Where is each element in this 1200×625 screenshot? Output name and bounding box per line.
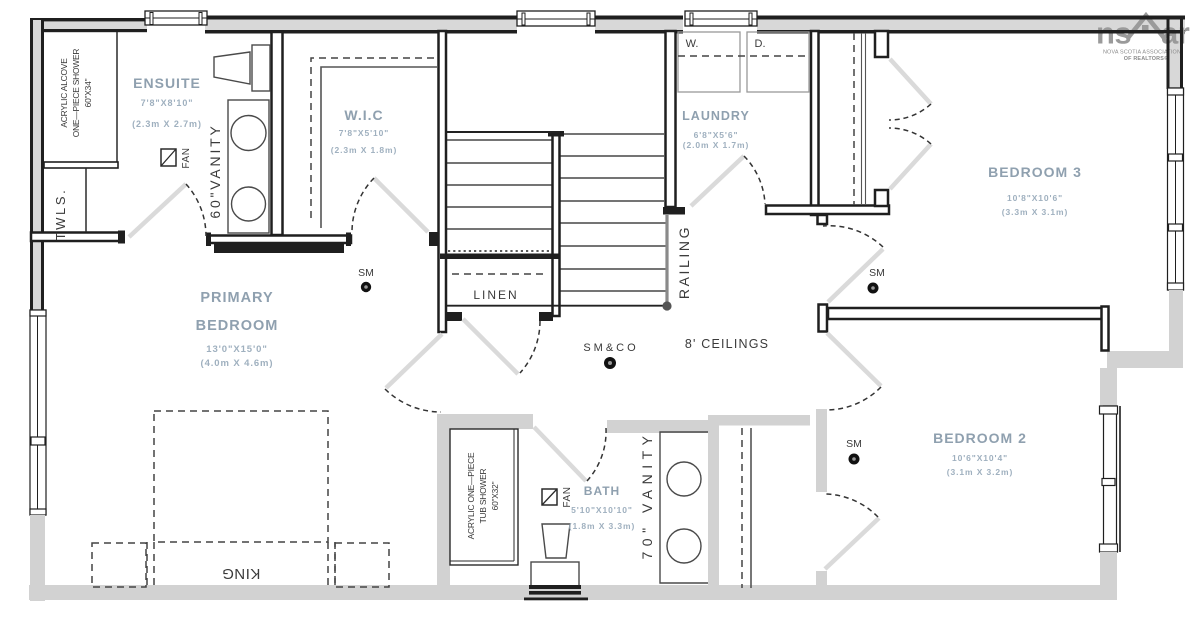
svg-text:OF REALTORS®: OF REALTORS®	[1124, 55, 1169, 62]
svg-text:SM&CO: SM&CO	[583, 342, 638, 354]
svg-text:D.: D.	[755, 38, 766, 50]
svg-text:(3.3m X 3.1m): (3.3m X 3.1m)	[1002, 207, 1069, 217]
svg-text:W.: W.	[686, 38, 699, 50]
svg-text:(3.1m X 3.2m): (3.1m X 3.2m)	[947, 467, 1014, 477]
svg-text:(1.8m X 3.3m): (1.8m X 3.3m)	[569, 521, 636, 531]
svg-text:BEDROOM 2: BEDROOM 2	[933, 430, 1027, 446]
svg-text:PRIMARY: PRIMARY	[200, 290, 273, 306]
svg-text:BATH: BATH	[584, 484, 620, 498]
svg-text:SM: SM	[846, 438, 862, 450]
svg-text:RAILING: RAILING	[676, 225, 692, 299]
svg-text:(2.3m X 2.7m): (2.3m X 2.7m)	[132, 119, 202, 129]
svg-text:5'10"X10'10": 5'10"X10'10"	[571, 505, 633, 515]
svg-text:10'8"X10'6": 10'8"X10'6"	[1007, 193, 1063, 203]
svg-text:LINEN: LINEN	[473, 288, 518, 302]
svg-text:60"X34": 60"X34"	[83, 78, 93, 107]
svg-text:BEDROOM: BEDROOM	[196, 318, 279, 334]
svg-text:(2.3m X 1.8m): (2.3m X 1.8m)	[331, 145, 398, 155]
svg-text:ONE—PIECE SHOWER: ONE—PIECE SHOWER	[71, 49, 81, 138]
svg-text:13'0"X15'0": 13'0"X15'0"	[206, 344, 267, 355]
svg-text:ACRYLIC ONE—PIECE: ACRYLIC ONE—PIECE	[466, 452, 476, 539]
svg-text:SM: SM	[869, 267, 885, 279]
svg-text:FAN: FAN	[181, 147, 192, 168]
svg-text:6'8"X5'6": 6'8"X5'6"	[694, 130, 739, 140]
svg-text:LAUNDRY: LAUNDRY	[682, 109, 750, 123]
svg-text:TUB SHOWER: TUB SHOWER	[478, 468, 488, 523]
svg-text:60"X32": 60"X32"	[490, 481, 500, 510]
svg-text:ENSUITE: ENSUITE	[133, 75, 201, 91]
svg-text:(4.0m X 4.6m): (4.0m X 4.6m)	[201, 358, 274, 369]
svg-text:(2.0m X 1.7m): (2.0m X 1.7m)	[683, 140, 750, 150]
svg-text:W.I.C: W.I.C	[344, 107, 383, 123]
svg-text:60"VANITY: 60"VANITY	[207, 123, 223, 218]
svg-text:ACRYLIC ALCOVE: ACRYLIC ALCOVE	[59, 58, 69, 128]
svg-text:70" VANITY: 70" VANITY	[639, 431, 655, 560]
svg-text:8' CEILINGS: 8' CEILINGS	[685, 337, 769, 351]
svg-text:7'8"X8'10": 7'8"X8'10"	[141, 98, 194, 108]
svg-text:BEDROOM 3: BEDROOM 3	[988, 164, 1082, 180]
svg-text:SM: SM	[358, 267, 374, 279]
svg-text:10'6"X10'4": 10'6"X10'4"	[952, 453, 1008, 463]
svg-text:TWLS.: TWLS.	[53, 188, 68, 241]
svg-text:7'8"X5'10": 7'8"X5'10"	[339, 128, 389, 138]
svg-text:KING: KING	[222, 565, 261, 582]
